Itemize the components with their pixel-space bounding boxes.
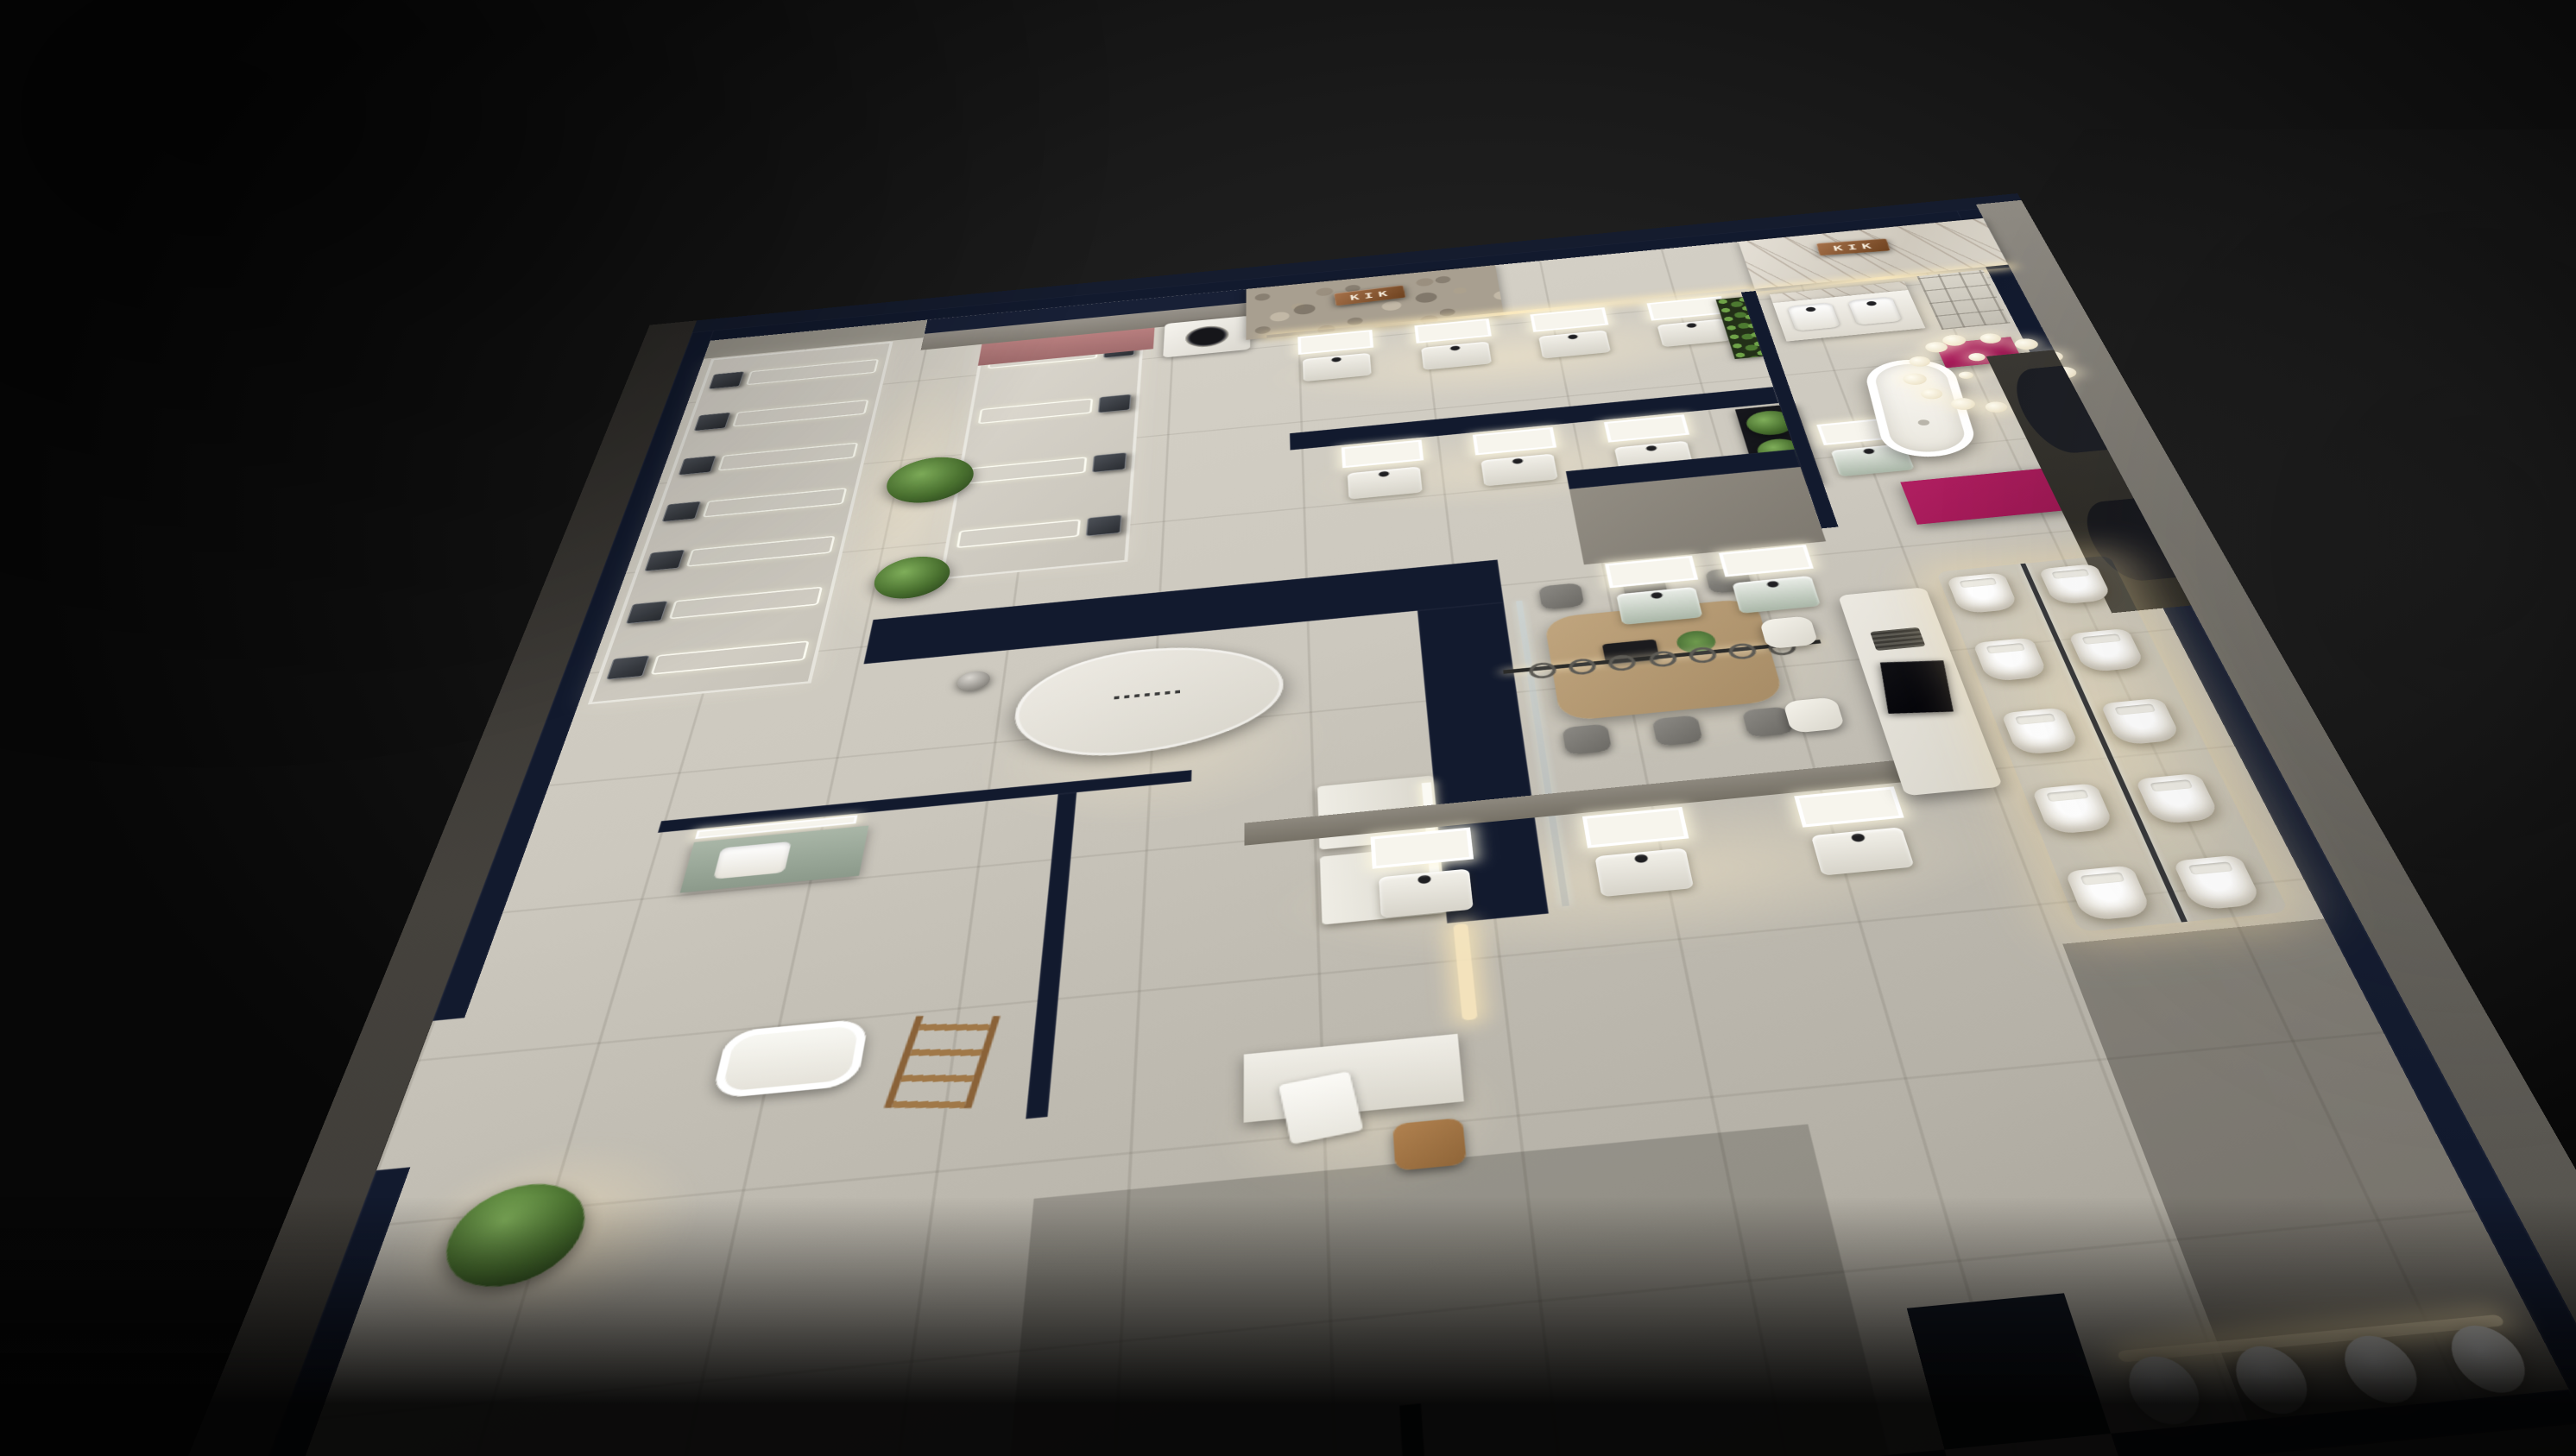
ambient-light-right — [1929, 129, 2576, 1165]
vignette-top-left — [0, 0, 1122, 777]
vanity-unit — [1569, 805, 1719, 919]
chair — [1651, 715, 1703, 746]
vip-basin-left — [1787, 302, 1840, 331]
vanity-unit — [1404, 318, 1508, 383]
vanity-unit — [1357, 826, 1497, 941]
vanity-unit — [1288, 329, 1388, 394]
chair — [1562, 723, 1612, 754]
bubble-lamp-sphere — [1901, 372, 1929, 386]
vanity-unit — [1520, 306, 1629, 371]
vanity-unit — [1593, 554, 1724, 640]
vignette-bottom — [0, 1197, 2576, 1456]
wooden-stool — [1392, 1118, 1467, 1171]
showroom-3d-render: KIK — [0, 0, 2576, 1456]
vanity-unit — [1462, 426, 1576, 501]
chair-white — [1783, 696, 1846, 733]
chair-white — [1759, 615, 1819, 649]
vanity-unit — [1706, 544, 1842, 630]
chair — [1538, 583, 1584, 610]
vanity-unit — [1330, 438, 1440, 514]
vanity-unit — [1780, 785, 1941, 898]
